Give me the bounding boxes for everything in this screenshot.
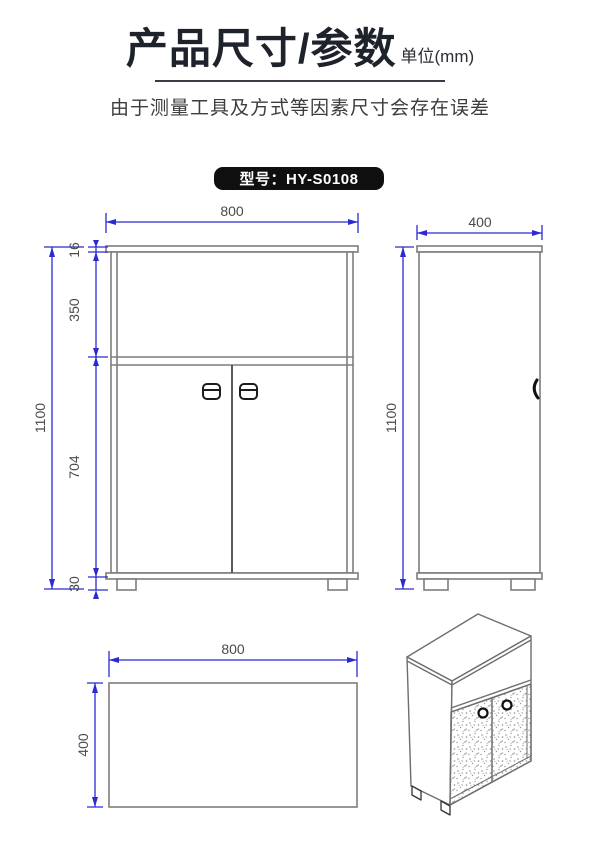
door-handle-right-icon xyxy=(240,384,257,399)
side-top-panel xyxy=(417,246,542,252)
front-view: 800 1100 16 350 704 30 xyxy=(32,203,358,599)
iso-handle-left-icon xyxy=(479,709,488,718)
door-handle-left-icon xyxy=(203,384,220,399)
side-view: 400 1100 xyxy=(383,214,542,590)
front-top-panel-label: 16 xyxy=(66,242,82,258)
front-left-foot xyxy=(117,579,136,590)
isometric-view xyxy=(407,614,531,815)
front-door-label: 704 xyxy=(66,455,82,479)
front-height-dimension xyxy=(44,247,84,589)
front-segment-dimensions xyxy=(88,240,108,599)
front-shelf-label: 350 xyxy=(66,298,82,322)
side-left-foot xyxy=(424,579,448,590)
top-view-outline xyxy=(109,683,357,807)
front-top-panel xyxy=(106,246,358,252)
iso-handle-right-icon xyxy=(503,701,512,710)
top-view: 800 400 xyxy=(75,641,357,807)
side-height-label: 1100 xyxy=(383,403,399,433)
iso-side-face xyxy=(407,657,452,805)
iso-right-door xyxy=(492,684,531,782)
side-cabinet-outline xyxy=(417,246,542,590)
product-dimension-sheet: { "header": { "title": "产品尺寸/参数", "unit"… xyxy=(0,0,600,852)
dimension-drawing: 800 1100 16 350 704 30 xyxy=(0,0,600,852)
side-base-strip xyxy=(417,573,542,579)
top-width-label: 800 xyxy=(221,641,245,657)
side-right-foot xyxy=(511,579,535,590)
side-width-label: 400 xyxy=(468,214,492,230)
front-right-foot xyxy=(328,579,347,590)
front-base-strip xyxy=(106,573,358,579)
front-feet-label: 30 xyxy=(66,576,82,592)
front-width-label: 800 xyxy=(220,203,244,219)
side-body xyxy=(419,252,540,573)
top-depth-label: 400 xyxy=(75,733,91,757)
front-height-label: 1100 xyxy=(32,403,48,433)
